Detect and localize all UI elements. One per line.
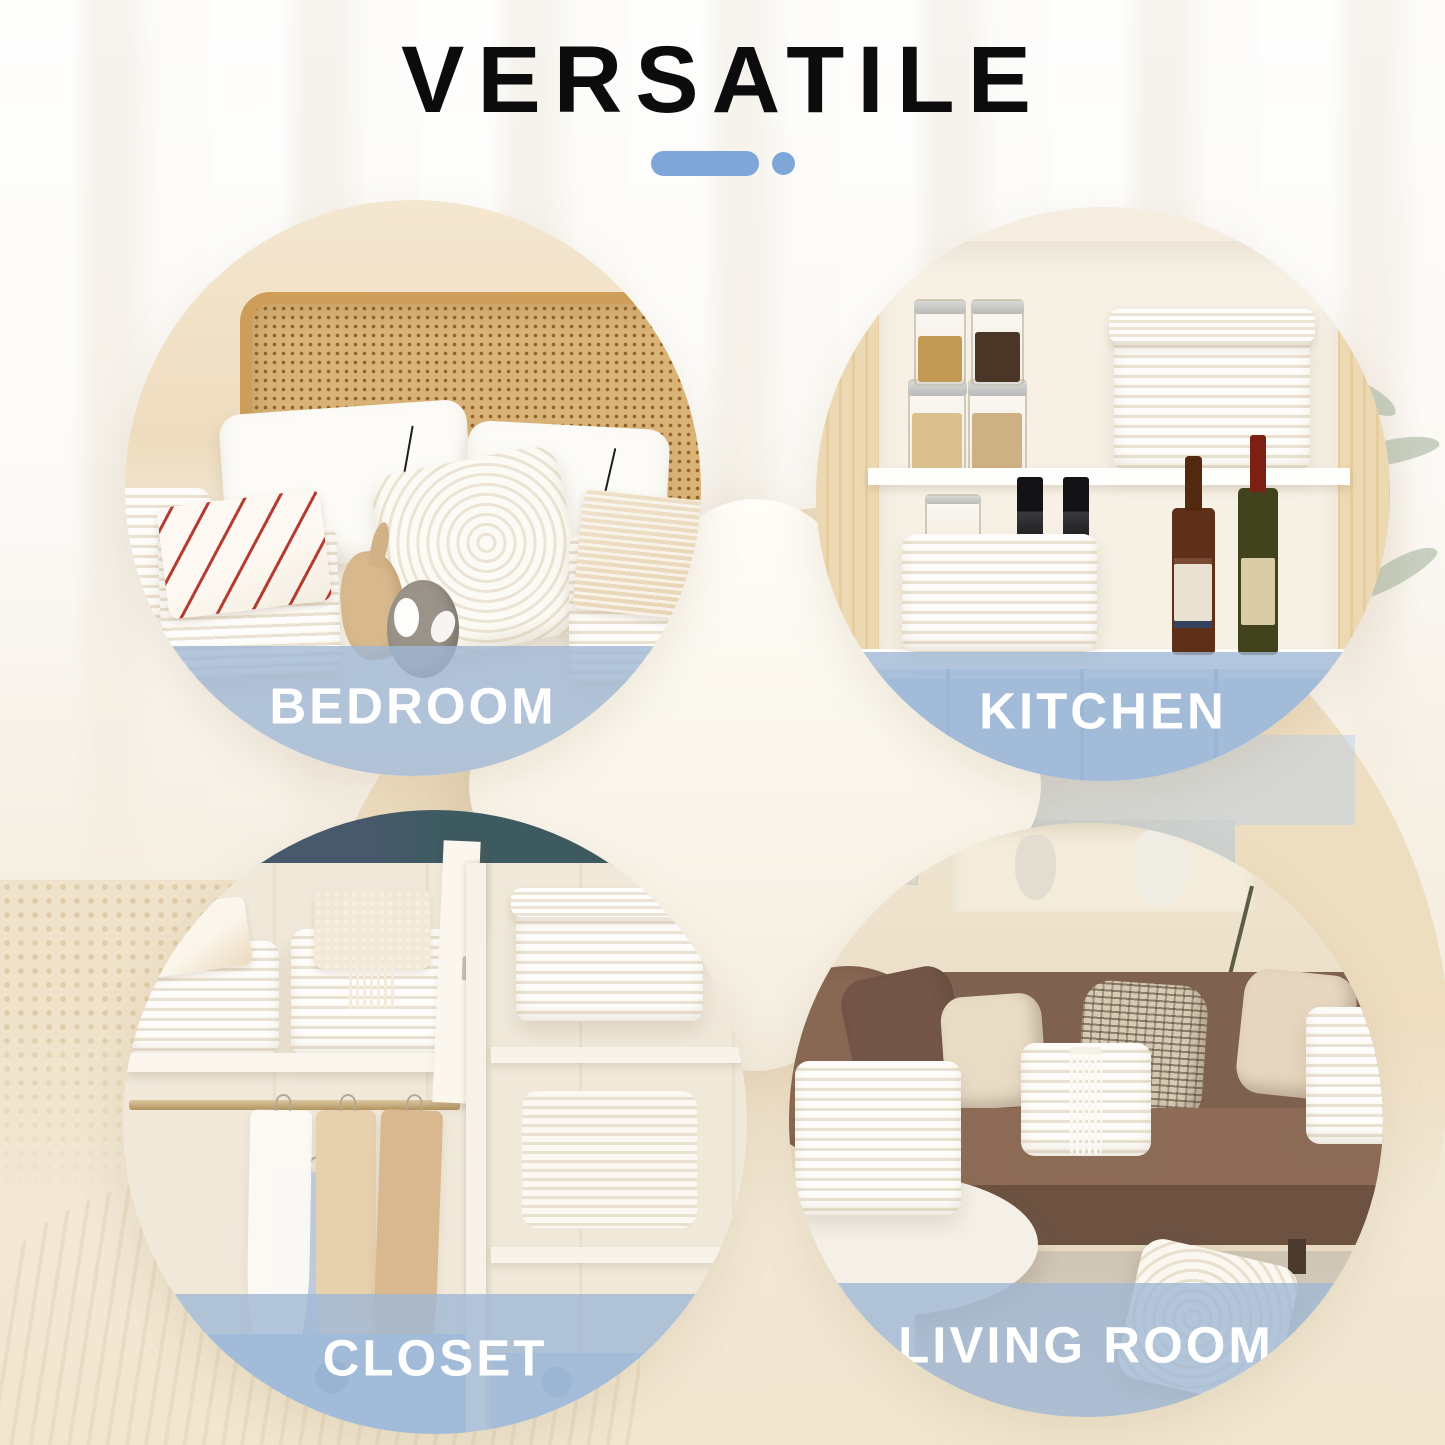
jar-contents: [972, 413, 1022, 470]
closet-shelf-board: [123, 1053, 479, 1072]
room-label: KITCHEN: [979, 682, 1227, 741]
pepper-grinder: [1063, 477, 1089, 540]
basket-lid: [1109, 309, 1316, 343]
wall-strip-above-closet: [123, 810, 747, 866]
kitchen-label-band: KITCHEN: [816, 652, 1390, 781]
sofa-leg: [1288, 1239, 1306, 1275]
kitchen-photo-circle: KITCHEN: [816, 207, 1390, 781]
lidded-storage-basket: [1114, 328, 1309, 472]
wine-bottle: [1238, 488, 1278, 654]
jar-contents: [975, 332, 1020, 382]
storage-basket-with-macrame: [1021, 1043, 1152, 1156]
title-underline-decoration: [0, 151, 1445, 176]
room-label: BEDROOM: [269, 676, 556, 735]
storage-basket: [902, 534, 1097, 652]
wall-niche-shelf: [949, 823, 1258, 912]
basket-lid: [511, 888, 709, 916]
underline-dot: [772, 152, 795, 175]
whisky-bottle: [1172, 508, 1215, 654]
room-label: CLOSET: [323, 1329, 548, 1388]
waffle-throw: [314, 890, 431, 969]
storage-basket: [522, 1091, 697, 1228]
jar-lid: [925, 496, 981, 504]
closet-label-band: CLOSET: [123, 1294, 747, 1434]
storage-basket: [1306, 1007, 1383, 1144]
lidded-storage-basket: [516, 904, 703, 1023]
storage-basket-with-magazines: [795, 1061, 961, 1215]
jar-lid: [971, 301, 1024, 314]
header: VERSATILE: [0, 26, 1445, 176]
living-room-photo-circle: LIVING ROOM: [789, 823, 1383, 1417]
closet-shelf-board: [491, 1247, 747, 1263]
bottle-label: [1241, 558, 1275, 625]
glass-jar: [908, 379, 967, 475]
closet-photo-circle: CLOSET: [123, 810, 747, 1434]
macrame-tassel: [1070, 1047, 1101, 1153]
jar-contents: [912, 413, 962, 470]
storage-basket-with-throw: [129, 941, 279, 1056]
underline-dash: [651, 151, 759, 176]
pepper-grinder: [1017, 477, 1043, 540]
room-label: LIVING ROOM: [898, 1315, 1274, 1374]
bedroom-label-band: BEDROOM: [125, 646, 701, 776]
living-room-label-band: LIVING ROOM: [789, 1283, 1383, 1417]
bedroom-photo-circle: BEDROOM: [125, 200, 701, 776]
red-pattern-blanket: [155, 489, 332, 620]
glass-jar: [971, 299, 1024, 386]
glass-jar: [968, 379, 1027, 475]
versatile-product-infographic: VERSATILE BEDROOM: [0, 0, 1445, 1445]
vase: [1134, 829, 1187, 906]
vase: [1015, 835, 1057, 900]
jar-lid: [914, 301, 967, 314]
shelf-board: [868, 468, 1350, 485]
page-title: VERSATILE: [0, 26, 1445, 135]
jar-contents: [918, 336, 963, 382]
bottle-label: [1174, 558, 1212, 628]
closet-shelf-board: [491, 1047, 747, 1063]
storage-basket-with-throw: [291, 929, 453, 1057]
woven-throw: [572, 489, 701, 622]
glass-jar: [914, 299, 967, 386]
